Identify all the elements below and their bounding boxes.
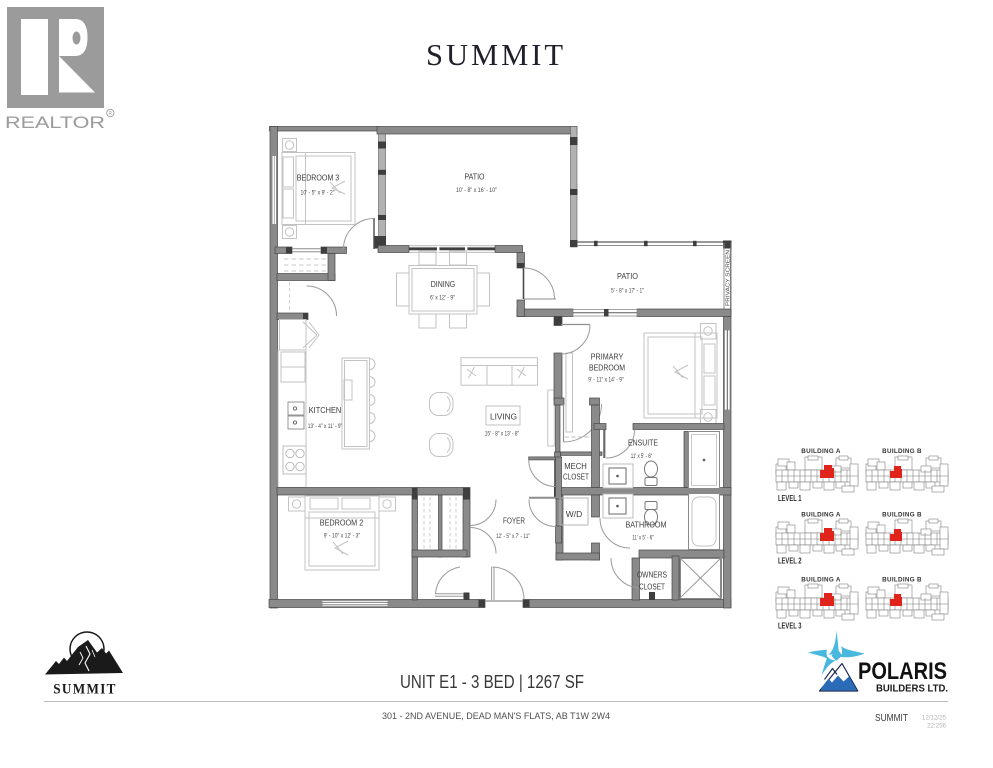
svg-text:SUMMIT: SUMMIT [426,37,566,72]
svg-text:PATIO: PATIO [465,172,485,182]
svg-text:12/12/25: 12/12/25 [922,715,947,722]
svg-text:6' x 12' - 9": 6' x 12' - 9" [430,296,455,302]
svg-text:KITCHEN: KITCHEN [309,405,342,415]
svg-text:SUMMIT: SUMMIT [875,713,908,724]
svg-text:BUILDING B: BUILDING B [882,512,922,519]
svg-text:PRIMARY: PRIMARY [591,352,624,362]
svg-text:BUILDING A: BUILDING A [801,577,841,584]
svg-text:CLOSET: CLOSET [563,472,590,482]
svg-text:BEDROOM: BEDROOM [589,363,625,373]
svg-text:UNIT E1 - 3 BED | 1267 SF: UNIT E1 - 3 BED | 1267 SF [400,671,584,692]
svg-text:9' - 10" x 12' - 3": 9' - 10" x 12' - 3" [324,534,361,540]
svg-text:DINING: DINING [431,279,456,289]
svg-text:LEVEL 2: LEVEL 2 [778,557,802,566]
svg-text:R: R [108,111,112,117]
svg-text:12' - 5" x 7' - 11": 12' - 5" x 7' - 11" [496,534,530,540]
svg-text:BEDROOM 3: BEDROOM 3 [297,173,340,183]
svg-text:SUMMIT: SUMMIT [53,682,117,698]
svg-text:BATHROOM: BATHROOM [626,520,667,530]
svg-text:22:256: 22:256 [927,723,946,730]
svg-text:BEDROOM 2: BEDROOM 2 [320,518,364,528]
svg-text:ENSUITE: ENSUITE [628,438,658,448]
svg-text:BUILDING B: BUILDING B [882,448,922,455]
svg-text:LEVEL 3: LEVEL 3 [778,622,802,631]
svg-text:REALTOR: REALTOR [5,113,105,132]
svg-text:OWNERS: OWNERS [637,570,667,580]
svg-text:BUILDING B: BUILDING B [882,577,922,584]
svg-text:BUILDERS LTD.: BUILDERS LTD. [876,683,948,695]
svg-text:9' - 11" x 14' - 9": 9' - 11" x 14' - 9" [588,378,624,384]
svg-text:BUILDING A: BUILDING A [801,448,841,455]
svg-text:5' - 8" x 17' - 1": 5' - 8" x 17' - 1" [611,289,644,295]
svg-text:LEVEL 1: LEVEL 1 [778,494,802,503]
svg-text:CLOSET: CLOSET [639,582,666,592]
svg-text:PRIVACY SCREEN: PRIVACY SCREEN [726,250,732,306]
svg-text:W/D: W/D [566,509,583,519]
svg-text:10' - 8" x 16' - 10": 10' - 8" x 16' - 10" [456,188,497,194]
svg-text:FOYER: FOYER [503,516,525,526]
svg-text:LIVING: LIVING [490,412,517,422]
svg-text:301 - 2ND AVENUE, DEAD MAN'S F: 301 - 2ND AVENUE, DEAD MAN'S FLATS, AB T… [382,711,610,721]
svg-text:10' - 5" x 9' - 2": 10' - 5" x 9' - 2" [301,191,335,197]
svg-text:PATIO: PATIO [617,271,638,281]
svg-text:MECH: MECH [564,461,587,471]
svg-text:11' x 5' - 6": 11' x 5' - 6" [631,454,653,460]
svg-text:15' - 8" x 13' - 8": 15' - 8" x 13' - 8" [485,432,520,438]
svg-text:13' - 4" x 11' - 9": 13' - 4" x 11' - 9" [308,424,343,430]
svg-text:POLARIS: POLARIS [858,658,947,685]
svg-text:11' x 5' - 6": 11' x 5' - 6" [632,536,654,542]
svg-text:BUILDING A: BUILDING A [801,512,841,519]
